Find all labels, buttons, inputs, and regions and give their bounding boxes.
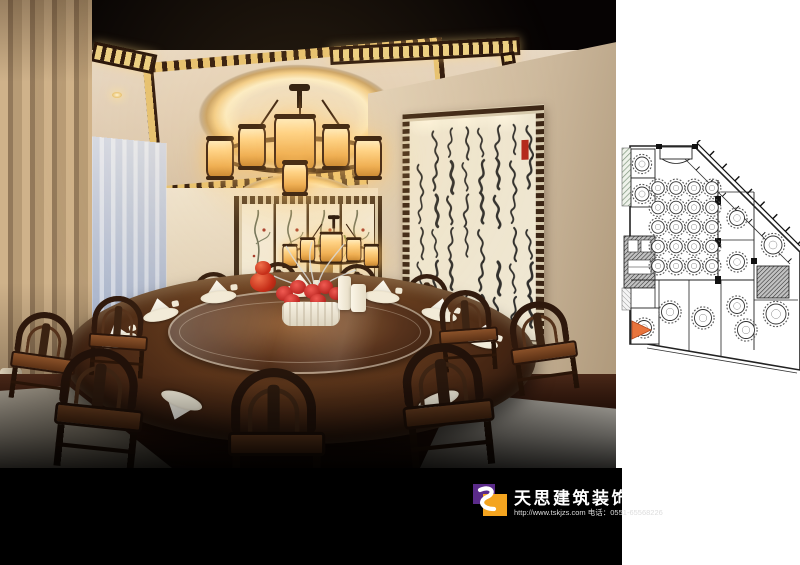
- candle: [338, 276, 351, 310]
- candle: [351, 284, 366, 312]
- lamp-shade: [238, 126, 266, 168]
- plan-service-core-right: [757, 266, 789, 298]
- chair: [49, 344, 150, 468]
- company-name: 天思建筑装饰: [514, 484, 631, 509]
- chair: [504, 297, 583, 397]
- lamp-shade: [282, 162, 308, 194]
- red-gourd-vase: [250, 272, 276, 292]
- chair: [228, 368, 325, 468]
- company-logo-icon: [473, 484, 507, 516]
- company-contact: http://www.tskjzs.com 电话：0551-65568226: [514, 507, 663, 518]
- red-gourd-vase-top: [255, 261, 271, 275]
- plan-round-table: [692, 307, 714, 329]
- interior-rendering-photo: [0, 0, 616, 468]
- chandelier-upper: [212, 84, 388, 214]
- floor-plan: [620, 140, 800, 376]
- floor-plan-drawing: [620, 140, 800, 376]
- red-seal: [521, 140, 528, 160]
- ceiling-shadow-band: [0, 0, 616, 50]
- plan-landscape-strip: [622, 148, 631, 206]
- place-setting: [197, 278, 239, 308]
- lamp-shade: [206, 138, 234, 178]
- page: 天思建筑装饰 http://www.tskjzs.com 电话：0551-655…: [0, 0, 800, 565]
- downlight: [112, 92, 122, 98]
- plan-stage: [660, 147, 692, 159]
- brand-bar: 天思建筑装饰 http://www.tskjzs.com 电话：0551-655…: [0, 468, 622, 565]
- chair: [396, 339, 499, 468]
- plan-round-table: [659, 301, 681, 323]
- lamp-shade: [322, 126, 350, 168]
- lamp-shade: [354, 138, 382, 178]
- plan-round-table: [735, 319, 757, 341]
- plan-elevator: [628, 240, 638, 252]
- plan-room: [631, 288, 655, 310]
- centerpiece-vase: [282, 302, 340, 326]
